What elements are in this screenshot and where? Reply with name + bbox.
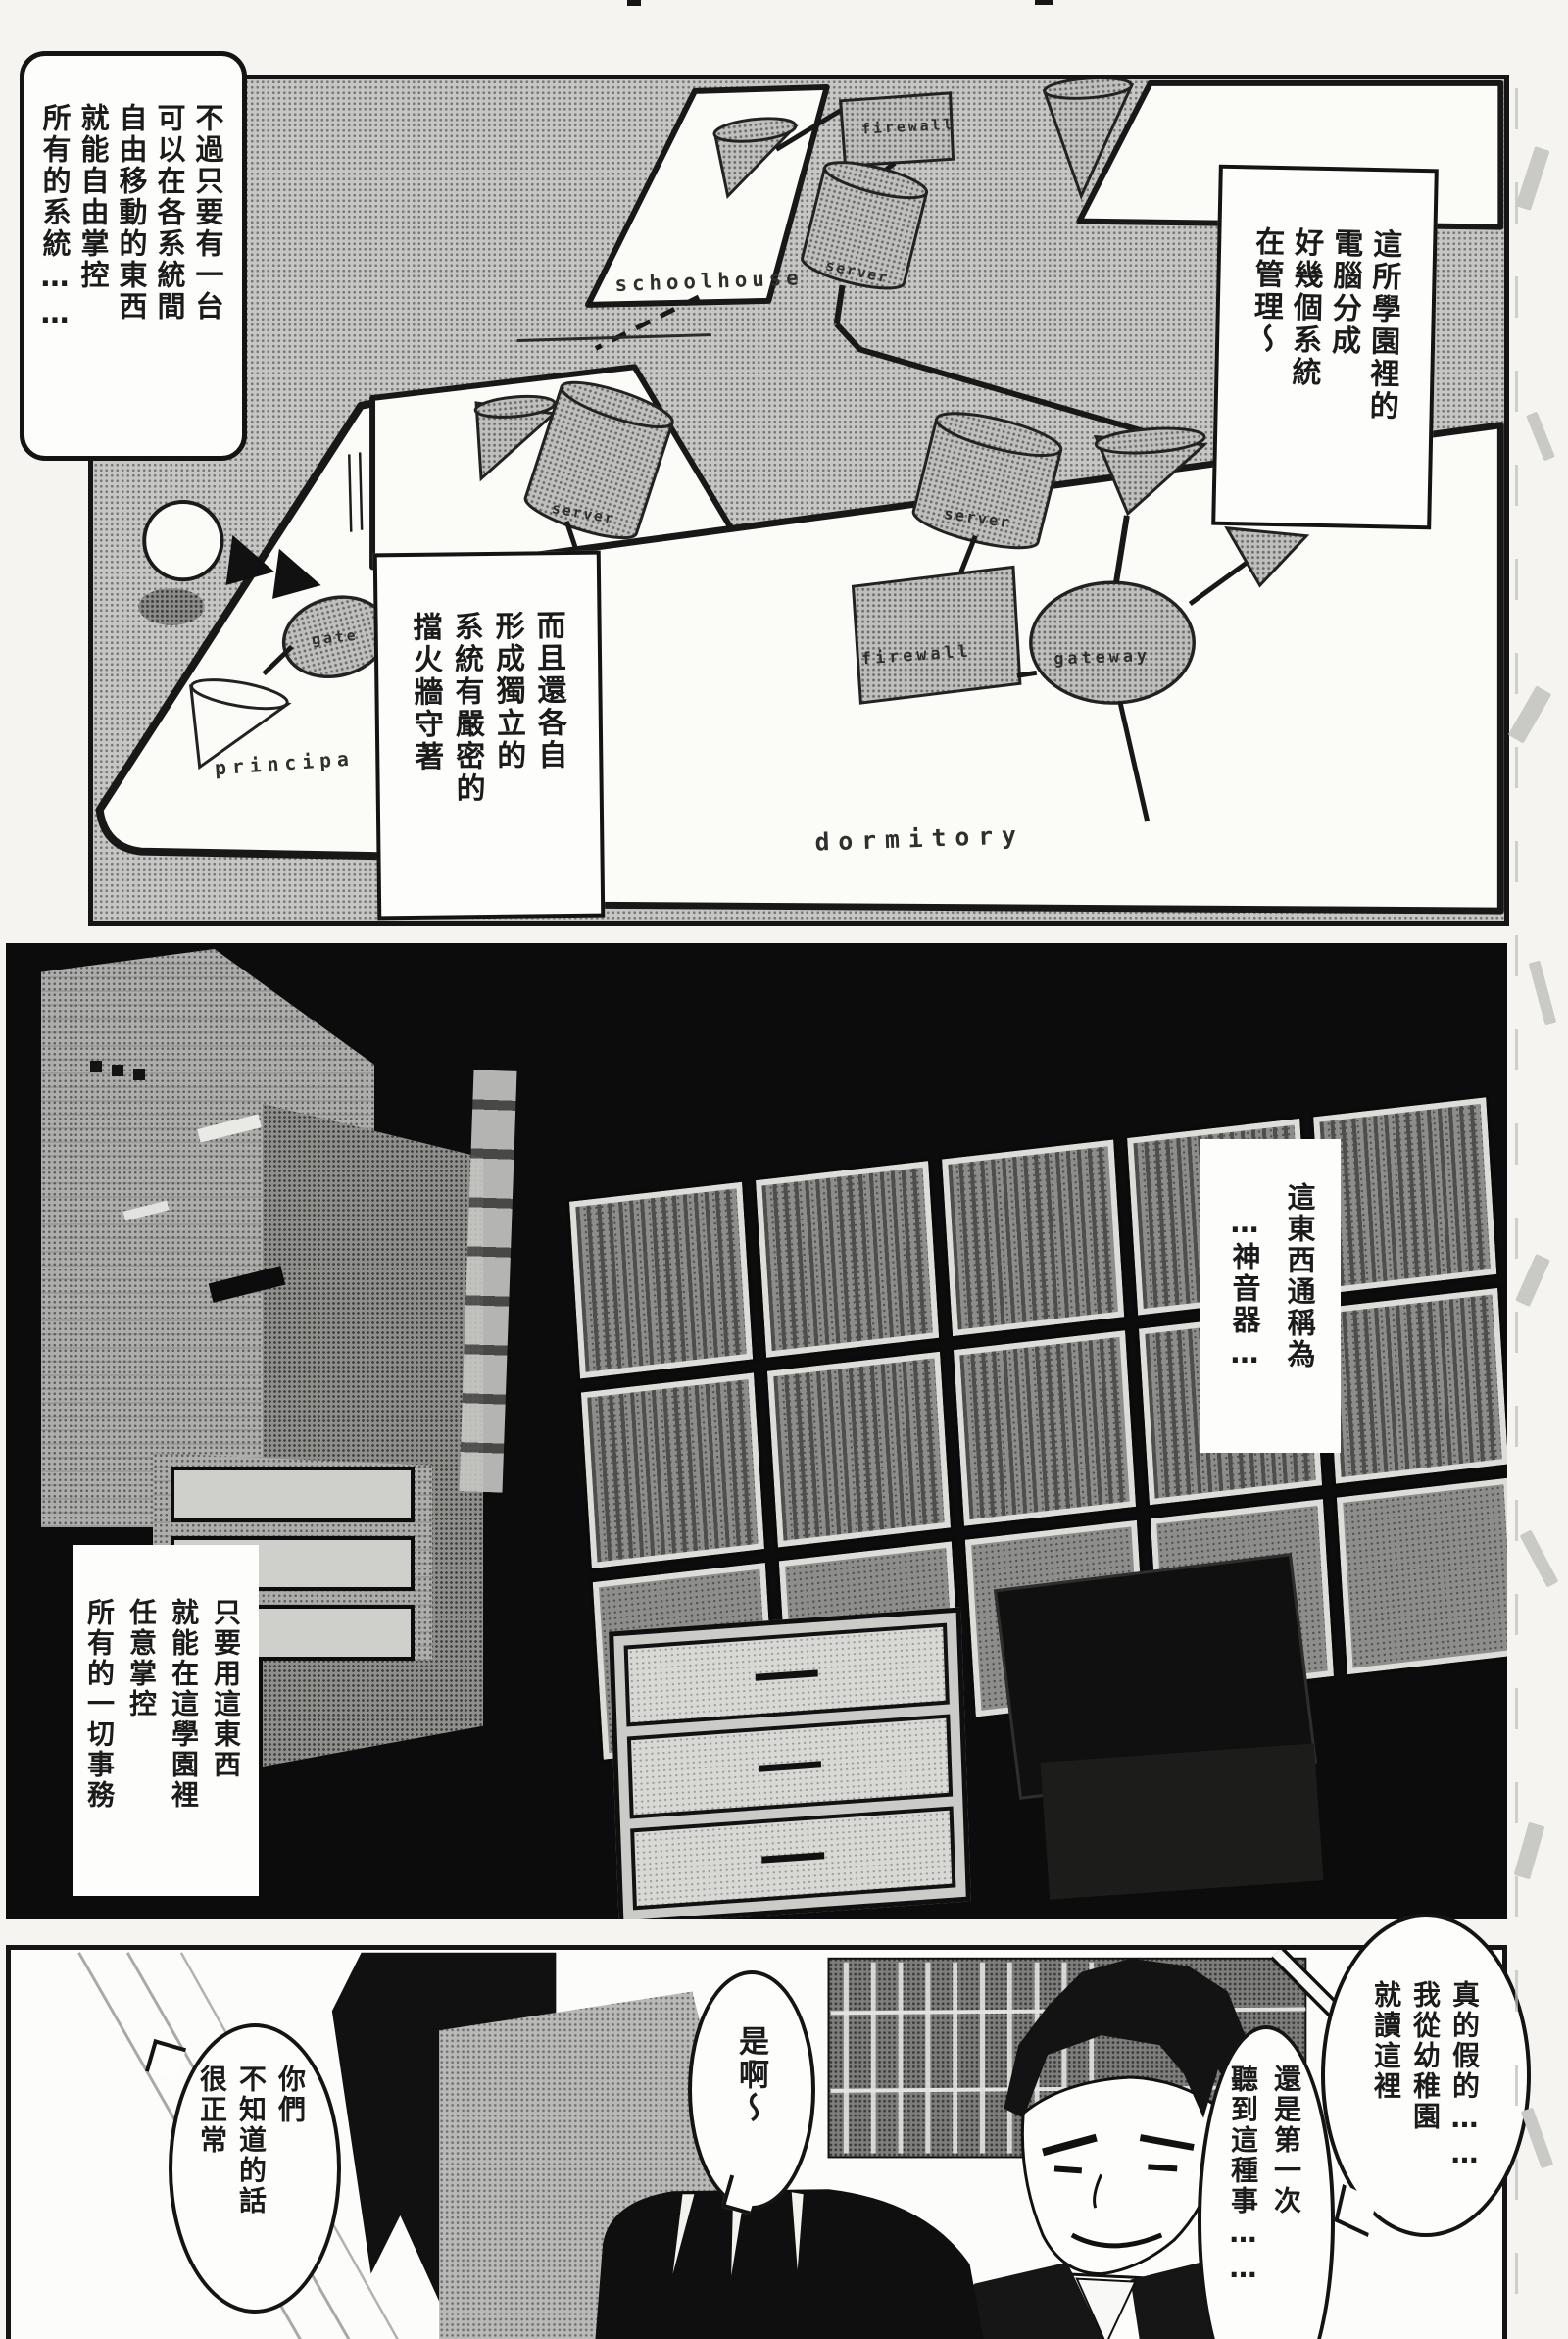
chair bbox=[1040, 1743, 1323, 1899]
scan-edge-mark bbox=[1526, 412, 1555, 462]
machinery-pipes bbox=[460, 1070, 517, 1492]
bubble-line: 而且還各自 bbox=[526, 610, 571, 900]
bubble-line: 我從幼稚園 bbox=[1405, 1980, 1445, 2219]
locker-cell bbox=[756, 1161, 939, 1357]
machinery-block bbox=[263, 1090, 483, 1767]
bubble-line: 聽到這種事…… bbox=[1221, 2065, 1264, 2339]
gateway-node bbox=[1031, 582, 1194, 703]
cabinet-slat bbox=[171, 1467, 415, 1522]
bubble-line: …神音器… bbox=[1217, 1206, 1272, 1441]
bubble-line: 就讀這裡 bbox=[1366, 1980, 1405, 2219]
speech-bubble-systems: 不過只要有一台 可以在各系統間 自由移動的東西 就能自由掌控 所有的系統…… bbox=[20, 51, 247, 461]
girl-character bbox=[595, 2189, 984, 2339]
bubble-line: 是啊～ bbox=[733, 2025, 768, 2194]
manga-page: schoolhouse firewall server bbox=[0, 0, 1568, 2339]
bubble-line: 這東西通稱為 bbox=[1272, 1182, 1327, 1441]
panel-middle-room: 這東西通稱為 …神音器… 只要用這東西 就能在這學園裡 任意掌控 所有的一切事務 bbox=[6, 943, 1507, 1919]
locker-cell bbox=[942, 1140, 1125, 1336]
scan-edge-mark bbox=[1514, 1822, 1545, 1880]
bubble-line: 就能在這學園裡 bbox=[163, 1598, 205, 1884]
bubble-line: 在管理～ bbox=[1242, 225, 1287, 509]
machinery-detail bbox=[90, 1061, 102, 1072]
bubble-line: 還是第一次 bbox=[1264, 2065, 1307, 2339]
speech-bubble-normal: 你們 不知道的話 很正常 bbox=[169, 2023, 341, 2314]
bubble-line: 可以在各系統間 bbox=[150, 103, 188, 442]
caption-box-systems-managed: 這所學園裡的 電腦分成 好幾個系統 在管理～ bbox=[1211, 165, 1439, 530]
scan-edge-mark bbox=[1515, 1254, 1550, 1307]
bubble-line: 所有的系統…… bbox=[35, 103, 73, 442]
bubble-line: 自由移動的東西 bbox=[112, 103, 150, 442]
shadow-blob bbox=[138, 588, 204, 625]
locker-cell bbox=[954, 1330, 1137, 1526]
bubble-line: 擋火牆守著 bbox=[403, 612, 448, 902]
caption-box-control: 只要用這東西 就能在這學園裡 任意掌控 所有的一切事務 bbox=[73, 1545, 259, 1896]
bubble-line: 系統有嚴密的 bbox=[444, 611, 489, 901]
bubble-line: 不過只要有一台 bbox=[188, 103, 226, 442]
bubble-line: 任意掌控 bbox=[121, 1598, 163, 1884]
caption-box-firewall: 而且還各自 形成獨立的 系統有嚴密的 擋火牆守著 bbox=[373, 551, 606, 921]
man-eye bbox=[1054, 2168, 1082, 2170]
locker-cell bbox=[1313, 1097, 1496, 1293]
drawer-unit bbox=[609, 1608, 971, 1919]
schoolhouse-panel: schoolhouse bbox=[588, 87, 827, 305]
bubble-line: 就能自由掌控 bbox=[73, 103, 112, 442]
firewall-node bbox=[853, 567, 1019, 703]
scan-edge-mark bbox=[1521, 2108, 1553, 2169]
bubble-line: 你們 bbox=[270, 2065, 310, 2298]
scan-tick bbox=[1035, 0, 1053, 5]
locker-cell bbox=[1325, 1288, 1507, 1484]
caption-box-device: 這東西通稱為 …神音器… bbox=[1200, 1139, 1341, 1453]
drawer bbox=[624, 1623, 950, 1727]
scan-edge-mark bbox=[1516, 146, 1550, 211]
drawer bbox=[630, 1806, 955, 1910]
principal-panel: gate principa bbox=[100, 398, 400, 857]
bubble-line: 形成獨立的 bbox=[485, 611, 530, 901]
scan-edge-mark bbox=[1520, 1529, 1559, 1587]
page-edge-line bbox=[1515, 59, 1518, 2294]
girl-hair bbox=[595, 2189, 984, 2339]
speech-bubble-yeah: 是啊～ bbox=[688, 1970, 815, 2210]
drawer bbox=[627, 1715, 953, 1818]
gateway-label: gateway bbox=[1053, 645, 1151, 668]
locker-cell bbox=[581, 1372, 764, 1568]
schoolhouse-firewall-node: firewall bbox=[841, 93, 955, 166]
bubble-line: 只要用這東西 bbox=[205, 1598, 247, 1884]
scan-edge-mark bbox=[1529, 961, 1557, 1026]
bubble-line: 所有的一切事務 bbox=[78, 1598, 121, 1884]
locker-cell bbox=[569, 1182, 753, 1378]
locker-cell bbox=[767, 1351, 951, 1547]
bubble-line: 電腦分成 bbox=[1320, 227, 1365, 511]
bubble-line: 這所學園裡的 bbox=[1359, 228, 1404, 512]
sphere-node bbox=[144, 502, 221, 579]
bubble-line: 很正常 bbox=[192, 2065, 231, 2298]
locker-cell bbox=[1337, 1478, 1507, 1674]
bubble-line: 真的假的…… bbox=[1445, 1980, 1484, 2219]
scan-tick bbox=[627, 0, 641, 6]
bubble-line: 不知道的話 bbox=[231, 2065, 270, 2298]
bubble-line: 好幾個系統 bbox=[1281, 226, 1326, 510]
